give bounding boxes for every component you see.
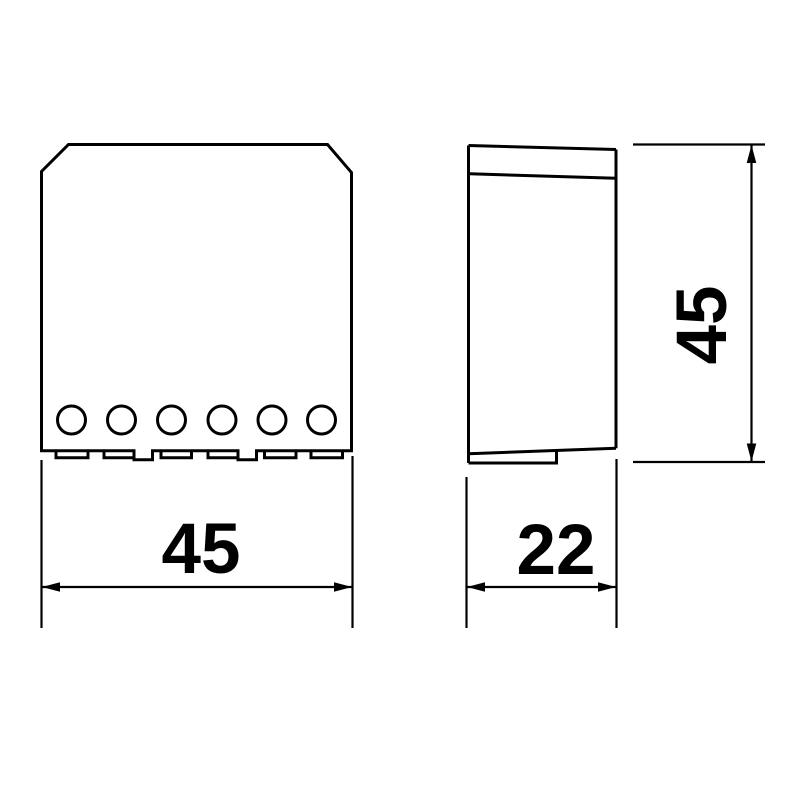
terminal-hole-6 bbox=[308, 406, 336, 434]
dimension-label-side-height: 45 bbox=[663, 286, 742, 365]
terminal-hole-5 bbox=[258, 406, 286, 434]
arrowhead-right bbox=[334, 582, 352, 592]
terminal-hole-1 bbox=[58, 406, 86, 434]
arrowhead-right bbox=[598, 582, 616, 592]
front-view bbox=[42, 145, 352, 460]
front-view-outline bbox=[42, 145, 352, 460]
dimension-label-front-width: 45 bbox=[162, 510, 241, 589]
dimension-side-depth: 22 bbox=[467, 459, 617, 628]
side-view-bottom-edge bbox=[469, 448, 617, 454]
technical-drawing-page: 45 22 45 bbox=[0, 0, 800, 800]
arrowhead-top bbox=[747, 145, 757, 163]
side-view bbox=[469, 146, 617, 464]
drawing-svg: 45 22 45 bbox=[0, 0, 800, 800]
arrowhead-left bbox=[42, 582, 60, 592]
terminal-hole-2 bbox=[108, 406, 136, 434]
terminal-hole-4 bbox=[208, 406, 236, 434]
dimension-label-side-depth: 22 bbox=[517, 511, 596, 590]
dimension-front-width: 45 bbox=[42, 456, 353, 628]
side-view-front-lip-line bbox=[470, 174, 617, 178]
arrowhead-left bbox=[467, 582, 485, 592]
dimension-side-height: 45 bbox=[633, 145, 765, 463]
arrowhead-bottom bbox=[747, 444, 757, 462]
terminal-hole-3 bbox=[158, 406, 186, 434]
side-view-top-edge bbox=[469, 146, 617, 150]
